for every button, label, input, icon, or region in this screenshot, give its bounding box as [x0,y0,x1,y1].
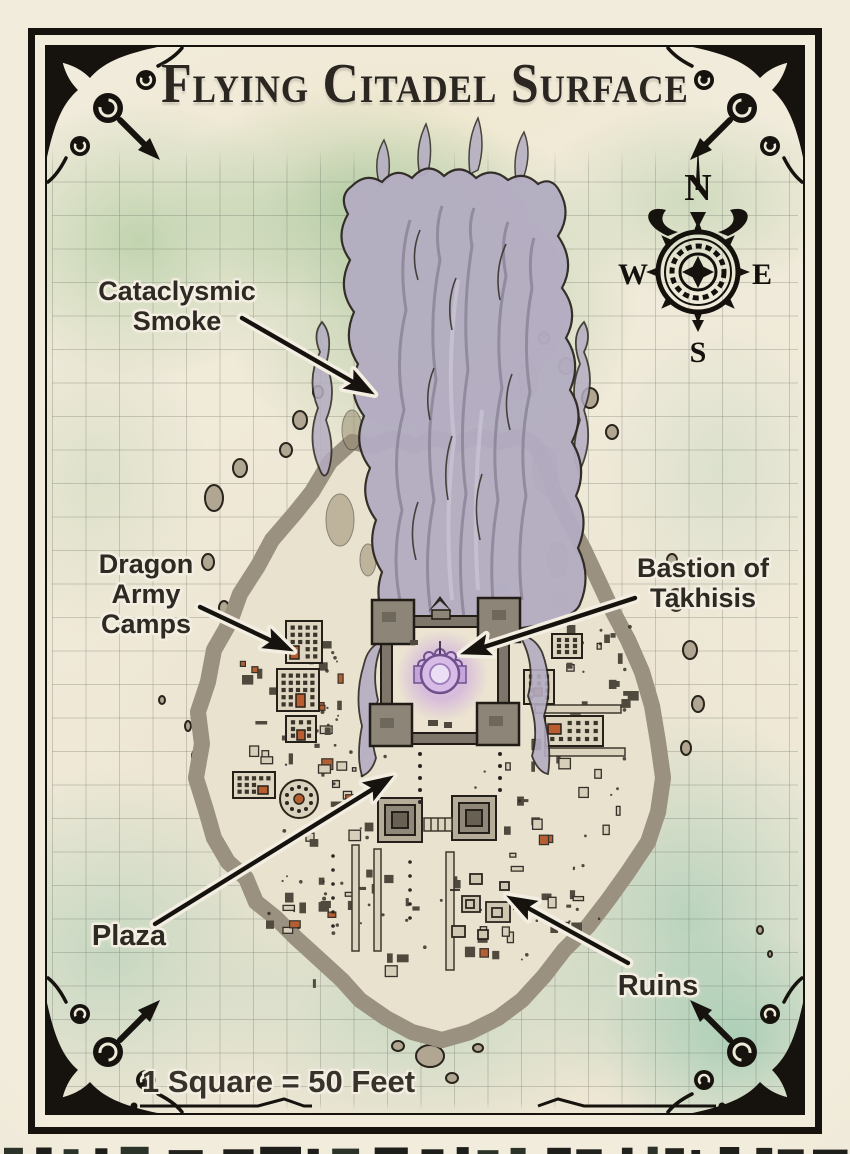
compass-rose: N E S W [618,144,772,369]
cutoff-text-strip [4,1147,848,1154]
label-ruins: Ruins [612,970,704,1002]
compass-south: S [690,336,707,369]
map-page: N E S W [0,0,850,1154]
label-cataclysmic-smoke: Cataclysmic Smoke [72,276,282,336]
map-title: Flying Citadel Surface [0,55,850,111]
label-dragon-army-camps: Dragon Army Camps [84,549,208,640]
label-bastion-of-takhisis: Bastion of Takhisis [612,553,794,613]
compass-north: N [684,167,711,209]
label-plaza: Plaza [86,920,172,952]
label-arrows [155,318,635,963]
arrow-to-plaza [155,766,400,924]
arrow-to-camps [200,607,299,661]
map-scale-note: 1 Square = 50 Feet [142,1064,415,1100]
arrow-to-ruins [501,886,628,963]
bottom-rules [131,1099,726,1110]
compass-east: E [752,258,772,291]
arrow-to-bastion [457,598,635,665]
compass-west: W [618,258,648,291]
